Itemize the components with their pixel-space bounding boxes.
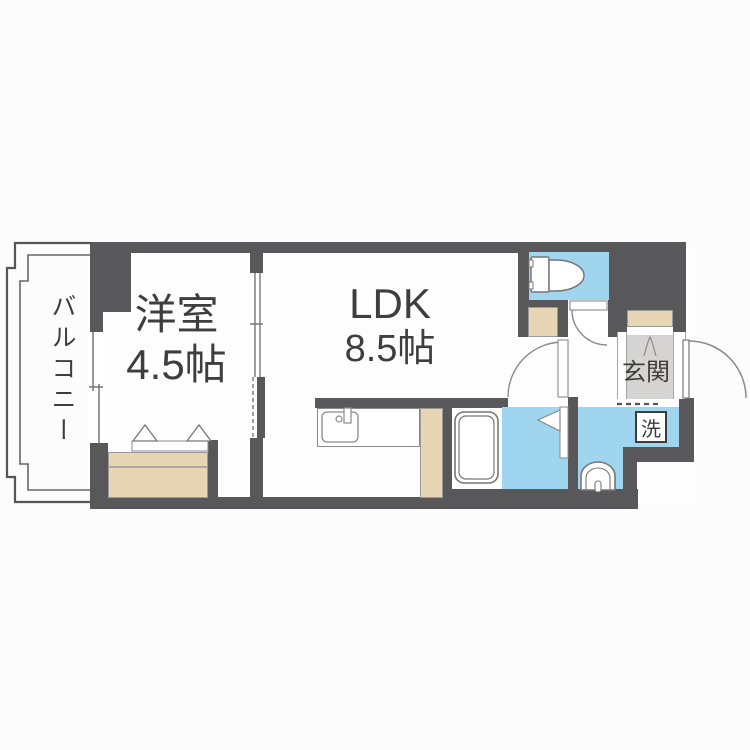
wall-bathroom-left (443, 398, 452, 489)
wall-kitchen (315, 398, 447, 408)
western-room-label: 洋室 4.5帖 (103, 290, 250, 391)
wall-partition-bottom (250, 438, 263, 497)
shoe-cabinet (627, 310, 673, 327)
kitchen-side-storage (420, 408, 443, 498)
wall-left-upper (90, 253, 103, 332)
washing-machine-label: 洗 (641, 413, 661, 442)
ldk-size: 8.5帖 (280, 328, 500, 372)
ldk-label: LDK 8.5帖 (280, 280, 500, 372)
floor-plan: 洗 洋室 4.5帖 LDK 8.5帖 バルコニー 玄関 (0, 0, 750, 750)
balcony-label: バルコニー (44, 293, 80, 448)
washroom-floor-lower (578, 447, 623, 489)
entrance-door-swing-icon (689, 341, 746, 398)
wall-washroom-lower-right (623, 447, 637, 489)
closet (108, 452, 208, 498)
western-room-size: 4.5帖 (103, 340, 250, 390)
entrance-label: 玄関 (616, 352, 676, 387)
ldk-name: LDK (280, 280, 500, 328)
toilet-door-opening (568, 300, 608, 337)
hall-cabinet (528, 307, 558, 337)
bathroom-floor-gap (560, 458, 568, 489)
entrance-step-strip (617, 399, 662, 407)
wall-bottom-left (90, 497, 442, 509)
wall-bottom-right (442, 489, 638, 509)
wall-washroom-left (568, 397, 578, 489)
wall-partition-mid (257, 377, 265, 438)
western-room-name: 洋室 (103, 290, 250, 340)
wall-bathroom-top (452, 398, 508, 408)
wall-partition-top (250, 253, 263, 273)
kitchen-counter (317, 408, 420, 447)
shoe-cabinet-ledge (627, 327, 673, 335)
toilet-room-floor (529, 252, 609, 300)
bathroom-floor (502, 407, 560, 489)
wall-closet-right (208, 440, 218, 497)
washing-machine-space: 洗 (635, 411, 667, 443)
